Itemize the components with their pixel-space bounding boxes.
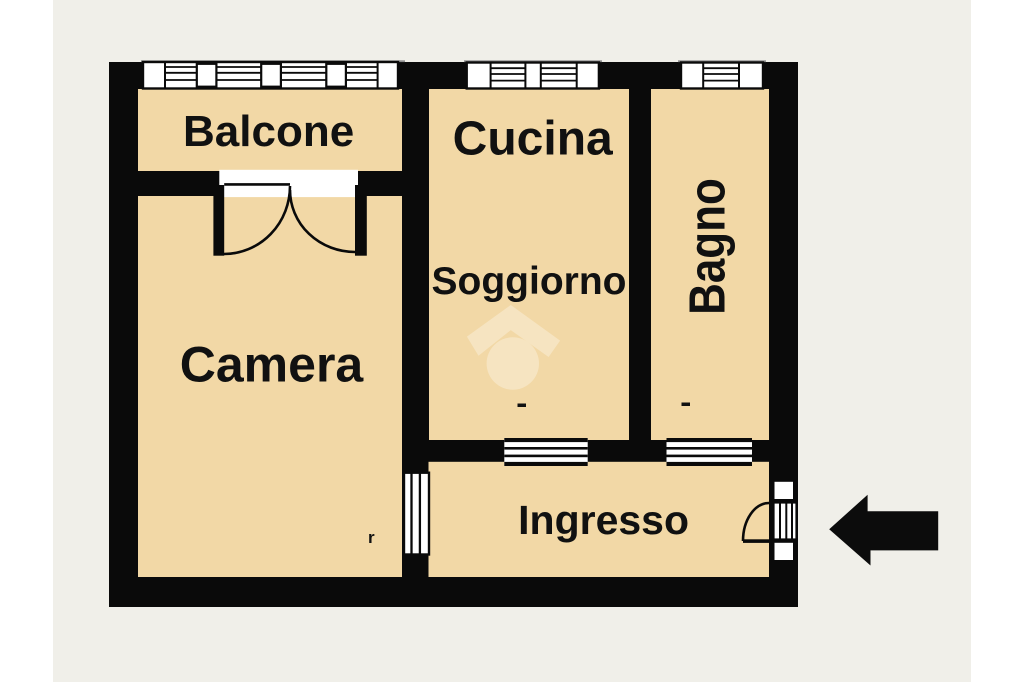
svg-text:Camera: Camera (180, 336, 365, 392)
svg-text:r: r (368, 528, 375, 547)
svg-text:Cucina: Cucina (453, 113, 613, 166)
svg-text:Soggiorno: Soggiorno (432, 260, 627, 303)
svg-text:Bagno: Bagno (680, 178, 737, 315)
svg-text:Ingresso: Ingresso (518, 497, 689, 543)
svg-text:Balcone: Balcone (183, 107, 354, 156)
